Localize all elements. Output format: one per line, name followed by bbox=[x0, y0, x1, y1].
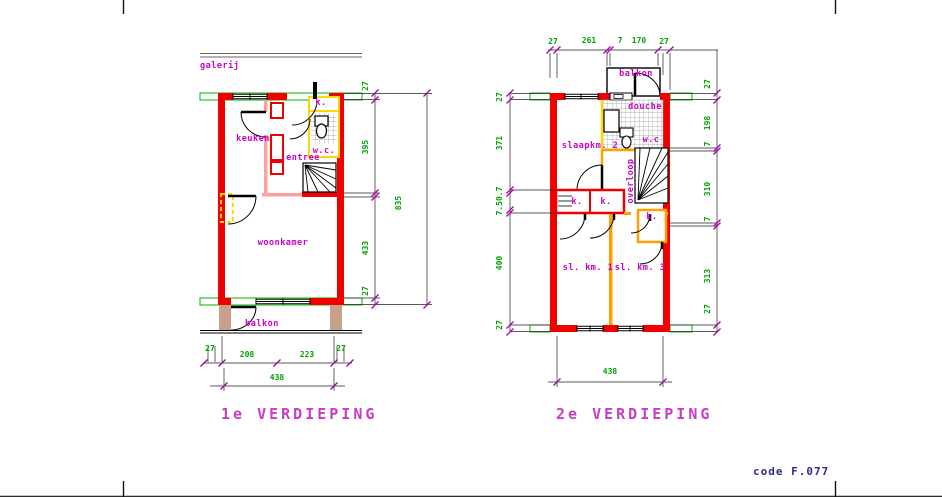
room-label-douche: douche bbox=[628, 103, 662, 112]
room-label-overloop: overloop bbox=[627, 159, 636, 204]
dim-label-p1-right-433: 433 bbox=[362, 241, 370, 255]
dim-label-p2-right-198: 198 bbox=[704, 116, 712, 130]
dim-label-p2-left-7507: 7.50.7 bbox=[496, 187, 504, 216]
room-label-galerij: galerij bbox=[200, 62, 239, 71]
dim-label-p2-top-261: 261 bbox=[582, 37, 596, 45]
room-label-balkon-plan2: balkon bbox=[619, 70, 653, 79]
toilet-symbol bbox=[315, 116, 328, 138]
dim-label-p2-left-371: 371 bbox=[496, 136, 504, 150]
room-label-kast3: k. bbox=[646, 213, 657, 222]
dim-label-p2-top-7: 7 bbox=[618, 37, 623, 45]
stairs-symbol-plan2 bbox=[635, 148, 668, 203]
dim-label-p2-right-7b: 7 bbox=[704, 217, 712, 222]
stairs-symbol-plan1 bbox=[303, 163, 336, 192]
dim-label-p1-right-27a: 27 bbox=[362, 81, 370, 91]
dim-label-p2-right-313: 313 bbox=[704, 269, 712, 283]
drawing-sheet: galerij keuken k. w.c. entree woonkamer … bbox=[0, 0, 942, 497]
room-label-wc-plan2: w.c bbox=[643, 136, 660, 145]
dim-label-p2-left-27b: 27 bbox=[496, 320, 504, 330]
dim-label-p2-left-400: 400 bbox=[496, 256, 504, 270]
dim-label-p2-right-7a: 7 bbox=[704, 142, 712, 147]
dim-label-p2-top-27b: 27 bbox=[659, 38, 669, 46]
dim-label-p1-right-27b: 27 bbox=[362, 286, 370, 296]
room-label-keuken: keuken bbox=[236, 135, 270, 144]
room-label-kast1: k. bbox=[571, 198, 582, 207]
shower-tray-symbol bbox=[604, 110, 619, 132]
room-label-kast-plan1: k. bbox=[315, 99, 326, 108]
room-label-slaapkamer1: sl. km. 1 bbox=[563, 264, 614, 273]
sheet-marks bbox=[0, 0, 942, 497]
dim-label-p1-right-total-835: 835 bbox=[395, 196, 403, 210]
sheet-code: code F.077 bbox=[753, 466, 829, 477]
dim-label-p2-left-27a: 27 bbox=[496, 92, 504, 102]
dim-label-p1-right-395: 395 bbox=[362, 140, 370, 154]
dim-label-p1-bottom-total-438: 438 bbox=[270, 374, 284, 382]
dim-label-p2-right-27b: 27 bbox=[704, 304, 712, 314]
dim-label-p1-bottom-27b: 27 bbox=[336, 345, 346, 353]
room-label-entree: entree bbox=[286, 154, 320, 163]
dim-label-p1-bottom-27a: 27 bbox=[205, 345, 215, 353]
plan2-title: 2e VERDIEPING bbox=[556, 407, 712, 422]
room-label-balkon-plan1: balkon bbox=[245, 320, 279, 329]
dim-label-p2-right-310: 310 bbox=[704, 182, 712, 196]
plan2-geometry bbox=[507, 47, 721, 388]
dim-label-p1-bottom-223: 223 bbox=[300, 351, 314, 359]
room-label-kast2: k. bbox=[600, 198, 611, 207]
dim-label-p2-right-27a: 27 bbox=[704, 79, 712, 89]
front-door-leaf bbox=[313, 82, 317, 99]
plan1-title: 1e VERDIEPING bbox=[221, 407, 377, 422]
dim-label-p2-top-170: 170 bbox=[632, 37, 646, 45]
room-label-slaapkamer2: slaapkm. 2 bbox=[562, 142, 618, 151]
room-label-slaapkamer3: sl. km. 3 bbox=[615, 264, 666, 273]
room-label-woonkamer: woonkamer bbox=[258, 239, 309, 248]
floorplan-geometry bbox=[0, 0, 942, 497]
dim-label-p2-bottom-total-438: 438 bbox=[603, 368, 617, 376]
dim-label-p2-top-27a: 27 bbox=[548, 38, 558, 46]
dim-label-p1-bottom-208: 208 bbox=[240, 351, 254, 359]
